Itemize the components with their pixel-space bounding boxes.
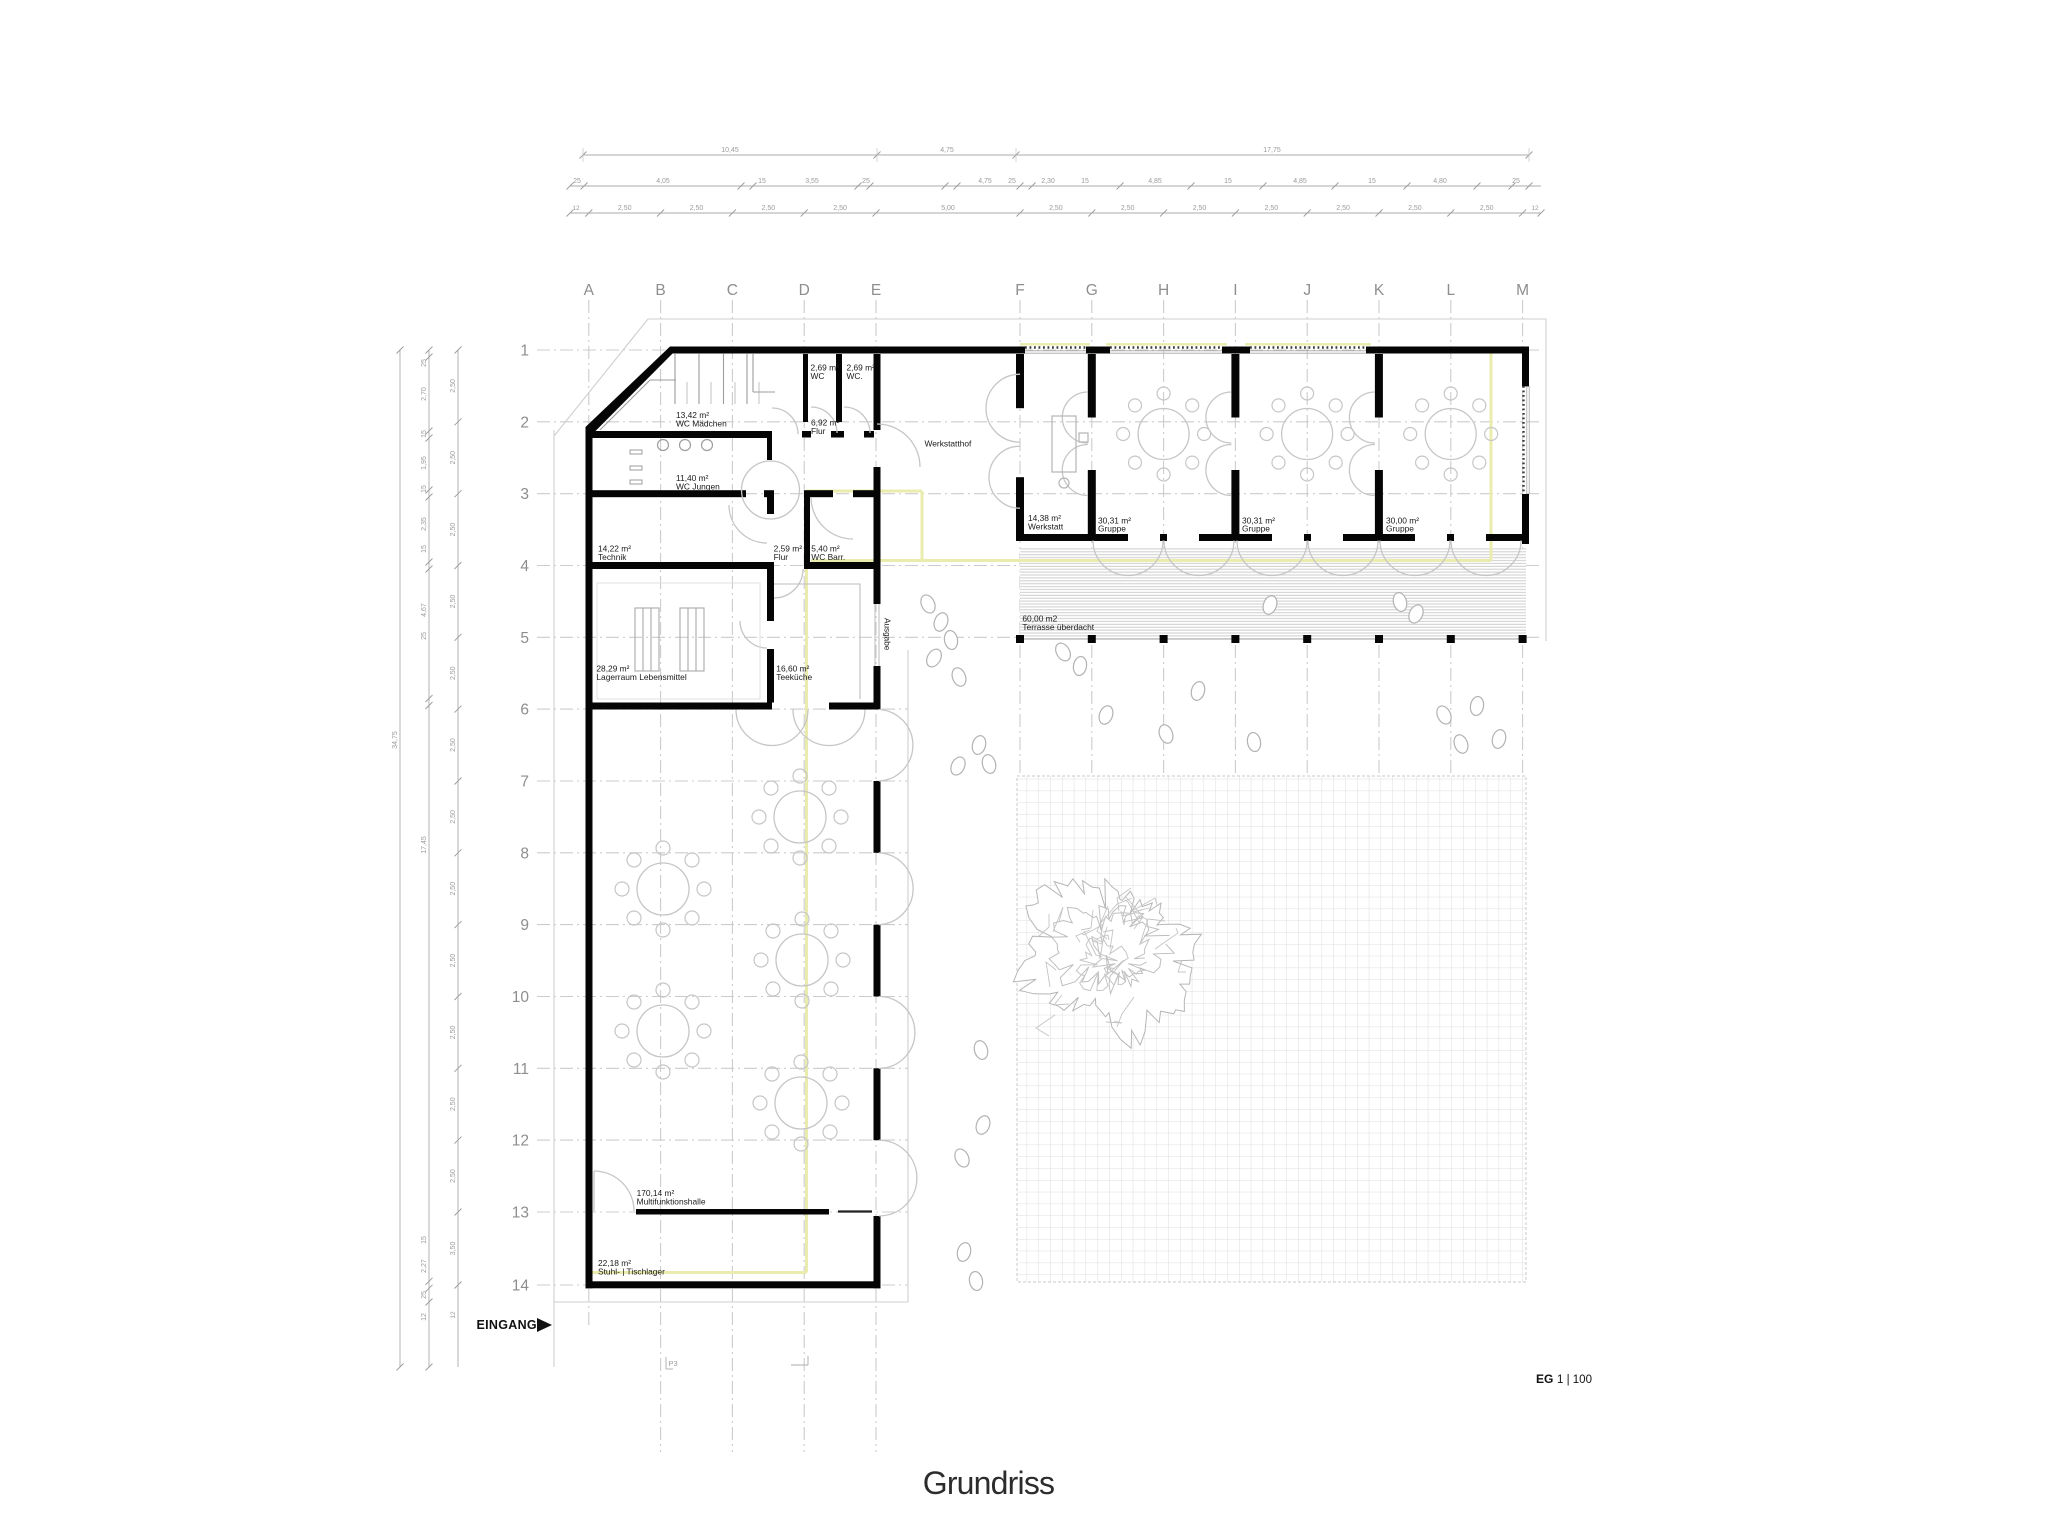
svg-text:Teeküche: Teeküche xyxy=(776,672,812,682)
svg-text:15: 15 xyxy=(758,178,766,185)
svg-text:2,50: 2,50 xyxy=(450,882,457,896)
svg-text:1 | 100: 1 | 100 xyxy=(1557,1374,1592,1386)
svg-text:15: 15 xyxy=(421,1236,428,1244)
svg-text:Gruppe: Gruppe xyxy=(1098,524,1126,534)
svg-text:L: L xyxy=(1446,282,1455,299)
svg-text:12: 12 xyxy=(450,1311,457,1319)
svg-text:2,50: 2,50 xyxy=(450,594,457,608)
svg-text:4,85: 4,85 xyxy=(1293,178,1307,185)
svg-text:8: 8 xyxy=(520,845,529,862)
svg-text:10,45: 10,45 xyxy=(721,147,739,154)
svg-text:3,55: 3,55 xyxy=(805,178,819,185)
svg-text:Multifunktionshalle: Multifunktionshalle xyxy=(637,1197,706,1207)
svg-text:2,50: 2,50 xyxy=(450,1025,457,1039)
svg-text:2,50: 2,50 xyxy=(1193,205,1207,212)
svg-text:M: M xyxy=(1516,282,1529,299)
svg-text:4,80: 4,80 xyxy=(1433,178,1447,185)
svg-text:2,50: 2,50 xyxy=(618,205,632,212)
svg-text:Terrasse überdacht: Terrasse überdacht xyxy=(1022,622,1094,632)
svg-text:15: 15 xyxy=(421,545,428,553)
svg-text:25: 25 xyxy=(421,632,428,640)
svg-text:EINGANG: EINGANG xyxy=(477,1318,537,1332)
svg-text:2,50: 2,50 xyxy=(450,1169,457,1183)
svg-text:17,45: 17,45 xyxy=(421,836,428,854)
svg-text:Flur: Flur xyxy=(774,552,789,562)
svg-text:3,50: 3,50 xyxy=(450,1242,457,1256)
svg-text:2,35: 2,35 xyxy=(421,517,428,531)
svg-text:Ausgabe: Ausgabe xyxy=(883,618,892,651)
svg-text:15: 15 xyxy=(421,485,428,493)
svg-text:K: K xyxy=(1374,282,1385,299)
svg-text:12: 12 xyxy=(512,1133,529,1150)
svg-text:Technik: Technik xyxy=(598,552,627,562)
svg-text:Flur: Flur xyxy=(811,426,826,436)
svg-text:12: 12 xyxy=(421,1313,428,1321)
svg-text:Grundriss: Grundriss xyxy=(923,1465,1055,1501)
svg-text:Stuhl- | Tischlager: Stuhl- | Tischlager xyxy=(598,1267,665,1277)
svg-text:C: C xyxy=(727,282,738,299)
svg-text:A: A xyxy=(584,282,595,299)
svg-text:4,75: 4,75 xyxy=(978,178,992,185)
svg-text:2,50: 2,50 xyxy=(450,1097,457,1111)
svg-text:12: 12 xyxy=(572,205,580,212)
svg-text:2,50: 2,50 xyxy=(450,666,457,680)
svg-text:WC Jungen: WC Jungen xyxy=(676,482,720,492)
svg-text:25: 25 xyxy=(573,178,581,185)
svg-text:F: F xyxy=(1015,282,1024,299)
svg-text:2,30: 2,30 xyxy=(1041,178,1055,185)
svg-text:B: B xyxy=(655,282,665,299)
svg-text:WC Mädchen: WC Mädchen xyxy=(676,419,727,429)
svg-text:2,50: 2,50 xyxy=(450,379,457,393)
svg-text:2,50: 2,50 xyxy=(1336,205,1350,212)
svg-text:EG: EG xyxy=(1536,1372,1553,1386)
svg-text:H: H xyxy=(1158,282,1169,299)
svg-text:4,75: 4,75 xyxy=(940,147,954,154)
svg-text:25: 25 xyxy=(421,1291,428,1299)
svg-text:9: 9 xyxy=(520,917,529,934)
svg-text:25: 25 xyxy=(1008,178,1016,185)
svg-text:WC: WC xyxy=(811,371,825,381)
svg-text:D: D xyxy=(799,282,810,299)
svg-text:34,75: 34,75 xyxy=(392,731,399,749)
svg-text:6: 6 xyxy=(520,702,529,719)
svg-text:2,50: 2,50 xyxy=(690,205,704,212)
svg-text:2,50: 2,50 xyxy=(450,954,457,968)
svg-text:2,50: 2,50 xyxy=(1480,205,1494,212)
svg-text:5,00: 5,00 xyxy=(941,205,955,212)
svg-text:3: 3 xyxy=(520,486,529,503)
svg-text:Gruppe: Gruppe xyxy=(1386,524,1414,534)
svg-text:15: 15 xyxy=(1081,178,1089,185)
svg-text:2,50: 2,50 xyxy=(1264,205,1278,212)
svg-text:2,50: 2,50 xyxy=(450,810,457,824)
svg-text:25: 25 xyxy=(1512,178,1520,185)
svg-text:WC Barr.: WC Barr. xyxy=(811,552,845,562)
svg-text:2,50: 2,50 xyxy=(1121,205,1135,212)
svg-text:2,50: 2,50 xyxy=(450,738,457,752)
svg-text:4,05: 4,05 xyxy=(656,178,670,185)
svg-text:Werkstatthof: Werkstatthof xyxy=(925,438,973,448)
svg-text:15: 15 xyxy=(421,430,428,438)
svg-text:4,85: 4,85 xyxy=(1148,178,1162,185)
svg-text:2,50: 2,50 xyxy=(1408,205,1422,212)
svg-text:G: G xyxy=(1086,282,1098,299)
svg-text:5: 5 xyxy=(520,630,529,647)
svg-text:14: 14 xyxy=(512,1278,530,1295)
svg-text:2,50: 2,50 xyxy=(450,451,457,465)
svg-text:J: J xyxy=(1303,282,1311,299)
svg-text:1,95: 1,95 xyxy=(421,456,428,470)
svg-text:2,50: 2,50 xyxy=(761,205,775,212)
svg-text:25: 25 xyxy=(421,359,428,367)
svg-text:1: 1 xyxy=(520,343,529,360)
svg-text:Lagerraum Lebensmittel: Lagerraum Lebensmittel xyxy=(596,672,686,682)
svg-text:2,70: 2,70 xyxy=(421,387,428,401)
svg-text:4,67: 4,67 xyxy=(421,603,428,617)
svg-text:2: 2 xyxy=(520,414,529,431)
svg-text:WC.: WC. xyxy=(847,371,863,381)
svg-text:25: 25 xyxy=(862,178,870,185)
svg-text:12: 12 xyxy=(1531,205,1539,212)
svg-text:11: 11 xyxy=(513,1061,529,1078)
svg-text:2,50: 2,50 xyxy=(450,523,457,537)
svg-text:15: 15 xyxy=(1224,178,1232,185)
svg-text:13: 13 xyxy=(512,1205,529,1222)
svg-text:Werkstatt: Werkstatt xyxy=(1028,522,1064,532)
svg-text:E: E xyxy=(871,282,881,299)
svg-text:I: I xyxy=(1233,282,1237,299)
svg-text:2,27: 2,27 xyxy=(421,1259,428,1273)
svg-text:17,75: 17,75 xyxy=(1263,147,1281,154)
svg-text:2,50: 2,50 xyxy=(833,205,847,212)
svg-text:7: 7 xyxy=(520,774,529,791)
svg-text:Gruppe: Gruppe xyxy=(1242,524,1270,534)
svg-text:4: 4 xyxy=(520,558,529,575)
svg-text:15: 15 xyxy=(1368,178,1376,185)
svg-text:10: 10 xyxy=(512,989,530,1006)
svg-text:P3: P3 xyxy=(669,1359,678,1368)
svg-text:2,50: 2,50 xyxy=(1049,205,1063,212)
